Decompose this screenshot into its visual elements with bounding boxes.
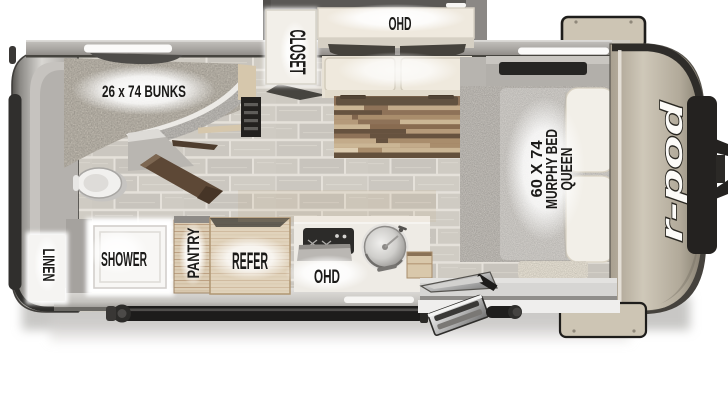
svg-text:OHD: OHD	[314, 267, 340, 288]
svg-text:LINEN: LINEN	[39, 249, 58, 282]
svg-text:OHD: OHD	[389, 14, 412, 34]
svg-text:REFER: REFER	[232, 248, 268, 275]
svg-text:QUEEN: QUEEN	[559, 148, 576, 191]
svg-text:CLOSET: CLOSET	[285, 30, 310, 75]
svg-text:r-pod: r-pod	[654, 100, 689, 242]
svg-text:SHOWER: SHOWER	[101, 249, 147, 271]
svg-text:26 x 74 BUNKS: 26 x 74 BUNKS	[102, 82, 186, 101]
svg-text:PANTRY: PANTRY	[184, 227, 203, 278]
